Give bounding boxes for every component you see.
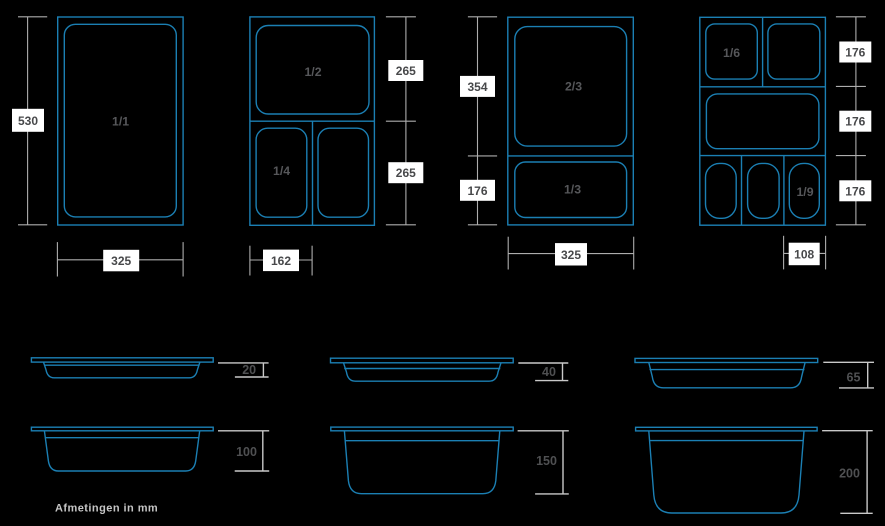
svg-text:108: 108 bbox=[794, 247, 814, 261]
svg-text:176: 176 bbox=[845, 46, 865, 60]
svg-text:20: 20 bbox=[242, 363, 256, 377]
svg-text:1/1: 1/1 bbox=[112, 115, 129, 129]
svg-text:200: 200 bbox=[839, 467, 860, 481]
svg-text:65: 65 bbox=[847, 371, 861, 385]
svg-text:176: 176 bbox=[467, 184, 487, 198]
svg-text:325: 325 bbox=[111, 254, 131, 268]
svg-text:40: 40 bbox=[542, 365, 556, 379]
svg-text:150: 150 bbox=[536, 454, 557, 468]
svg-text:1/2: 1/2 bbox=[304, 65, 321, 79]
svg-text:162: 162 bbox=[271, 254, 291, 268]
svg-text:530: 530 bbox=[18, 114, 38, 128]
svg-text:1/4: 1/4 bbox=[273, 164, 290, 178]
svg-text:265: 265 bbox=[396, 64, 416, 78]
svg-text:1/9: 1/9 bbox=[796, 185, 813, 199]
svg-text:325: 325 bbox=[561, 248, 581, 262]
svg-text:2/3: 2/3 bbox=[565, 80, 582, 94]
svg-text:176: 176 bbox=[845, 115, 865, 129]
svg-text:265: 265 bbox=[396, 166, 416, 180]
svg-text:1/3: 1/3 bbox=[564, 183, 581, 197]
svg-text:176: 176 bbox=[845, 184, 865, 198]
svg-text:1/6: 1/6 bbox=[723, 46, 740, 60]
svg-text:100: 100 bbox=[236, 445, 257, 459]
svg-text:Afmetingen in mm: Afmetingen in mm bbox=[55, 502, 158, 514]
svg-text:354: 354 bbox=[467, 80, 487, 94]
